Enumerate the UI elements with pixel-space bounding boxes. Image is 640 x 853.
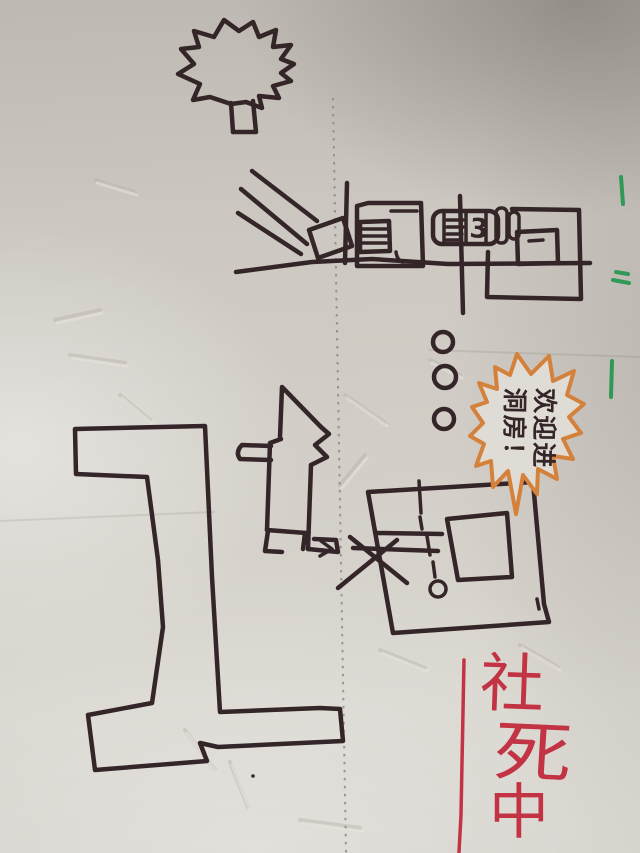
burst-line-1: 欢迎进	[528, 383, 559, 476]
red-bracket-line	[459, 660, 464, 852]
entrance-x-mark	[338, 537, 407, 588]
machine-box: 3	[433, 211, 498, 245]
walled-path-outline	[75, 426, 343, 770]
cat-front-leg	[303, 465, 311, 549]
room-inner-box	[447, 513, 512, 580]
shutter-slats	[362, 229, 387, 243]
pole-right	[460, 196, 463, 313]
cat-tail	[238, 445, 271, 460]
street-scene-sketch: 3	[236, 171, 590, 313]
ink-speck	[251, 774, 255, 778]
pole-left	[345, 183, 347, 263]
door-hook	[396, 252, 406, 262]
burst-line-2: 洞房！	[499, 382, 530, 475]
green-mark-3	[611, 361, 612, 397]
crease-line-right	[428, 350, 640, 357]
room-peephole-circle	[430, 581, 446, 597]
cat-back	[267, 439, 281, 530]
green-mark-2	[613, 272, 629, 283]
garage-building	[357, 203, 423, 266]
machine-number: 3	[469, 213, 490, 245]
road-ray-lines	[238, 171, 317, 254]
caption-char-3: 中	[489, 783, 549, 843]
room-outer-box	[368, 482, 549, 633]
cat-sketch	[238, 387, 338, 552]
cat-belly	[267, 530, 306, 533]
room-corner-tick	[537, 599, 539, 609]
speech-burst-text: 欢迎进 洞房！	[499, 382, 560, 475]
green-margin-marks	[611, 177, 629, 397]
crease-line-left	[0, 512, 215, 521]
tree-sketch	[178, 20, 294, 132]
footprint-dots	[433, 332, 456, 429]
tree-canopy	[178, 20, 294, 108]
house-window	[517, 230, 558, 264]
caption-char-1: 社	[479, 652, 545, 718]
photo-of-paper-sketch: 3	[0, 0, 640, 853]
house-window-dash	[529, 240, 543, 241]
room-dashed-path	[419, 481, 435, 577]
green-mark-1	[621, 177, 623, 204]
cat-head	[280, 387, 329, 465]
cat-rear-foot	[265, 531, 282, 552]
